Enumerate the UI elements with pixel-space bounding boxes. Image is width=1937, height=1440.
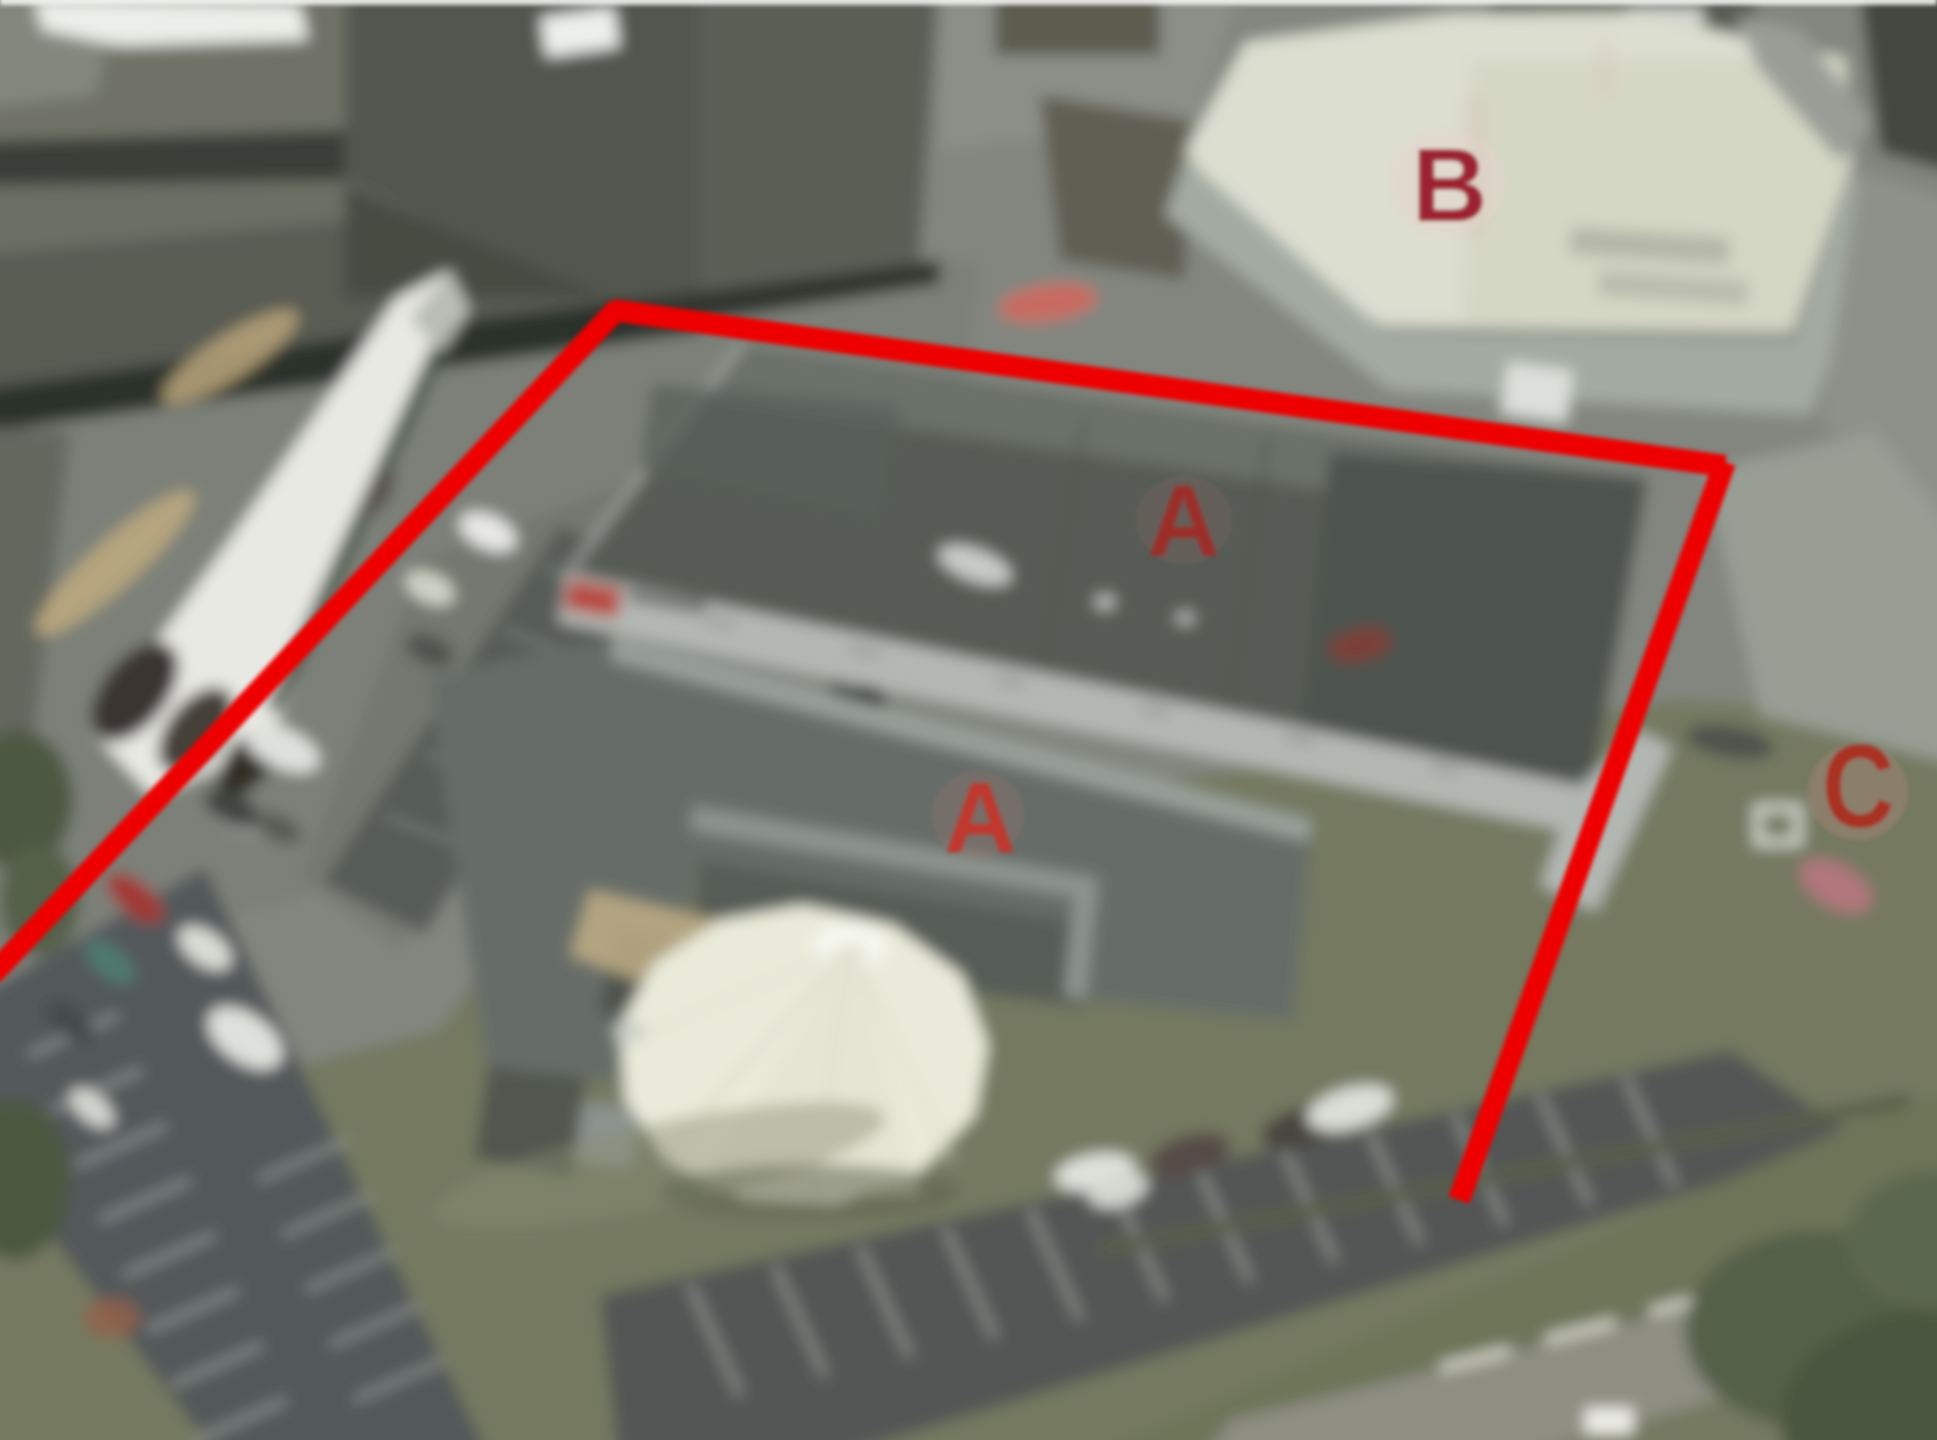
svg-text:A: A [1147,466,1220,578]
svg-text:A: A [944,762,1016,874]
svg-text:B: B [1412,128,1487,244]
svg-text:C: C [1822,721,1894,852]
